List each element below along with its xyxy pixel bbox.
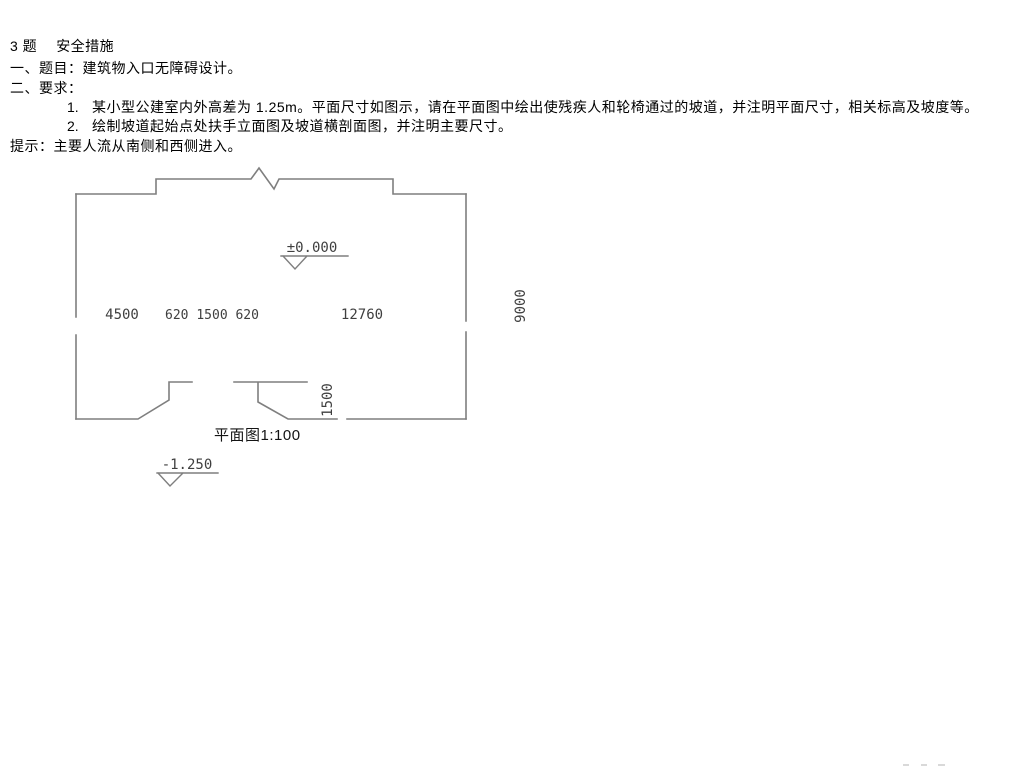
exam-document-page: 3 题安全措施 一、题目：建筑物入口无障碍设计。 二、要求： 1.某小型公建室内…	[0, 0, 1024, 768]
dim-west-width: 4500	[105, 307, 139, 323]
dim-porch-depth: 1500	[320, 383, 336, 417]
level-minus-value: -1.250	[162, 457, 213, 473]
plan-south-wall-west-segment	[76, 382, 192, 419]
level-marker-minus-symbol	[157, 473, 218, 486]
floor-plan-drawing: ±0.000 -1.250 4500 620 1500 620 12760 90…	[0, 0, 1024, 768]
dim-east-width: 12760	[341, 307, 383, 323]
level-zero-value: ±0.000	[287, 240, 338, 256]
dim-entrance-widths: 620 1500 620	[165, 308, 259, 323]
plan-top-wall	[76, 168, 466, 194]
level-marker-zero-symbol	[281, 256, 348, 269]
dim-building-depth: 9000	[513, 289, 529, 323]
plan-scale-label: 平面图1:100	[214, 427, 301, 444]
